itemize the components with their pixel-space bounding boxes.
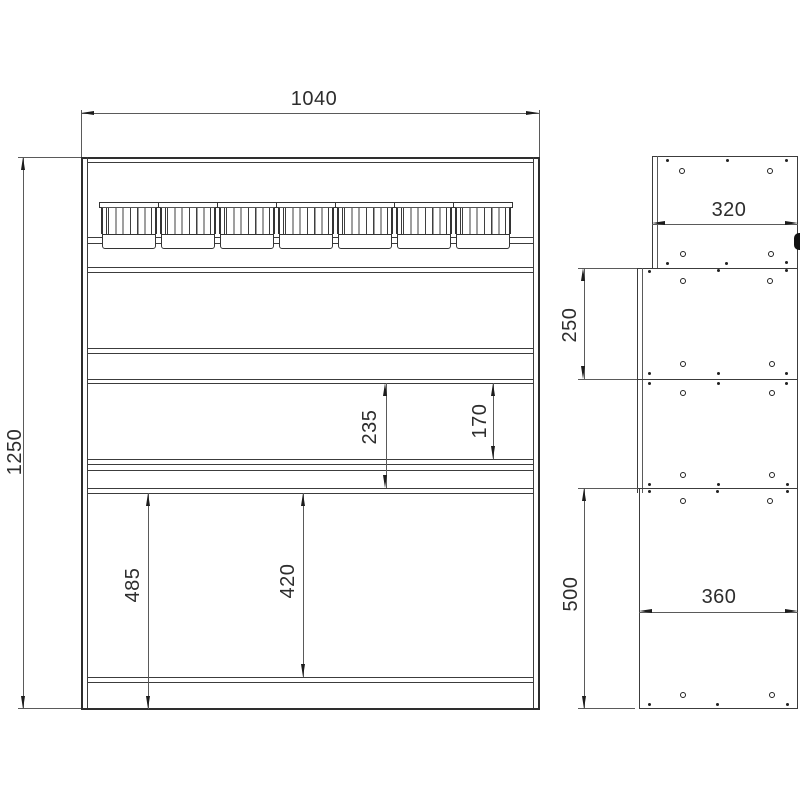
hole-dot [717, 483, 720, 486]
hole-dot [725, 262, 728, 265]
dimension-line [148, 493, 149, 709]
bin-body [337, 207, 393, 234]
hole-ring [769, 390, 775, 396]
shelf-line [87, 464, 533, 465]
shelf-line [87, 272, 533, 273]
storage-bin [396, 202, 452, 248]
arrowhead [146, 696, 150, 709]
dimension-line [584, 268, 585, 379]
bin-ridges [462, 208, 504, 234]
side-section-line [637, 379, 798, 380]
frame-right-line [538, 157, 540, 709]
bin-body [160, 207, 216, 234]
side-section-line [637, 488, 798, 489]
dimension-line [303, 493, 304, 678]
bin-tray [279, 234, 333, 249]
arrowhead [639, 609, 652, 613]
hole-dot [786, 490, 789, 493]
hole-dot [786, 483, 789, 486]
arrowhead [581, 268, 585, 281]
hole-dot [716, 703, 719, 706]
hole-dot [717, 372, 720, 375]
frame-left-inner-line [87, 157, 88, 708]
arrowhead [785, 609, 798, 613]
frame-left-line [81, 157, 83, 709]
side-top-edge [652, 156, 798, 157]
front-width-label: 1040 [291, 89, 338, 109]
hole-ring [769, 472, 775, 478]
hole-ring [680, 692, 686, 698]
bin-tray [161, 234, 215, 249]
hole-ring [680, 390, 686, 396]
hole-ring [767, 498, 773, 504]
side-bottom-edge [639, 708, 799, 709]
hole-dot [648, 270, 651, 273]
extension-line [578, 488, 638, 489]
dimension-line [584, 488, 585, 709]
arrowhead [582, 488, 586, 501]
hole-dot [717, 382, 720, 385]
technical-drawing: 1040 1250 235 170 [0, 0, 800, 800]
hole-dot [666, 262, 669, 265]
hole-dot [785, 261, 788, 264]
arrowhead [146, 493, 150, 506]
bin-ridges [403, 208, 445, 234]
bottom-section-label: 485 [123, 568, 143, 603]
side-panel-edge [652, 156, 653, 269]
storage-bin [337, 202, 393, 248]
hole-dot [716, 490, 719, 493]
shelf-opening-label: 170 [470, 404, 490, 439]
shelf-line [87, 682, 533, 683]
bin-tray [397, 234, 451, 249]
hole-ring [680, 472, 686, 478]
hole-dot [666, 159, 669, 162]
bin-ridges [344, 208, 386, 234]
side-panel-edge [657, 156, 658, 269]
bin-ridges [167, 208, 209, 234]
side-top-depth-label: 320 [712, 200, 747, 220]
hole-ring [769, 361, 775, 367]
arrowhead [21, 696, 25, 709]
hole-ring [680, 361, 686, 367]
arrowhead [81, 111, 94, 115]
arrowhead [526, 111, 539, 115]
hole-ring [680, 278, 686, 284]
shelf-line [87, 677, 533, 678]
storage-bin [278, 202, 334, 248]
bin-ridges [226, 208, 268, 234]
shelf-line [87, 353, 533, 354]
bin-body [396, 207, 452, 234]
shelf-pitch-label: 235 [360, 410, 380, 445]
hole-dot [717, 269, 720, 272]
bin-tray [102, 234, 156, 249]
shelf-line [87, 383, 533, 384]
frame-top-line [81, 157, 540, 159]
extension-line [578, 268, 637, 269]
hole-dot [648, 372, 651, 375]
mounting-clip [794, 233, 800, 250]
hole-ring [767, 278, 773, 284]
arrowhead [582, 696, 586, 709]
extension-line [18, 157, 81, 158]
hole-dot [726, 159, 729, 162]
hole-ring [680, 498, 686, 504]
shelf-line [87, 267, 533, 268]
hole-dot [785, 372, 788, 375]
frame-bottom-line [81, 708, 540, 710]
arrowhead [383, 475, 387, 488]
frame-right-inner-line [533, 157, 534, 708]
storage-bin [455, 202, 511, 248]
bin-tray [220, 234, 274, 249]
side-base-depth-label: 360 [702, 587, 737, 607]
dimension-line [639, 612, 798, 613]
extension-line [18, 708, 81, 709]
dimension-line [652, 224, 798, 225]
storage-bin [219, 202, 275, 248]
bin-tray [456, 234, 510, 249]
hole-ring [679, 168, 685, 174]
hole-dot [786, 703, 789, 706]
arrowhead [581, 366, 585, 379]
extension-line [539, 110, 540, 157]
storage-bin [160, 202, 216, 248]
bin-tray [338, 234, 392, 249]
hole-dot [648, 490, 651, 493]
bin-body [219, 207, 275, 234]
dimension-line [386, 383, 387, 488]
hole-dot [785, 382, 788, 385]
front-height-label: 1250 [5, 429, 25, 476]
shelf-line [87, 379, 533, 380]
hole-dot [785, 269, 788, 272]
arrowhead [301, 664, 305, 677]
extension-line [578, 708, 635, 709]
arrowhead [301, 493, 305, 506]
side-upper-height-label: 250 [560, 308, 580, 343]
shelf-line [87, 459, 533, 460]
side-panel-edge [637, 268, 638, 493]
arrowhead [21, 157, 25, 170]
bin-body [455, 207, 511, 234]
storage-bin [101, 202, 157, 248]
bottom-opening-label: 420 [278, 564, 298, 599]
hole-dot [648, 382, 651, 385]
bin-body [101, 207, 157, 234]
bin-body [278, 207, 334, 234]
dimension-line [81, 113, 539, 114]
hole-ring [768, 251, 774, 257]
extension-line [578, 379, 637, 380]
shelf-line [87, 470, 533, 471]
arrowhead [491, 383, 495, 396]
hole-ring [769, 692, 775, 698]
shelf-line [87, 348, 533, 349]
bin-ridges [285, 208, 327, 234]
side-lower-height-label: 500 [561, 577, 581, 612]
hole-dot [648, 703, 651, 706]
arrowhead [652, 221, 665, 225]
side-panel-edge [642, 268, 643, 493]
arrowhead [383, 383, 387, 396]
arrowhead [785, 221, 798, 225]
frame-inner-top-line [87, 162, 533, 163]
hole-dot [648, 483, 651, 486]
shelf-line [87, 488, 533, 489]
hole-ring [680, 251, 686, 257]
shelf-line [87, 493, 533, 494]
hole-dot [785, 159, 788, 162]
side-panel-edge [639, 488, 640, 710]
extension-line [81, 110, 82, 157]
hole-ring [767, 168, 773, 174]
bin-ridges [108, 208, 150, 234]
arrowhead [491, 446, 495, 459]
